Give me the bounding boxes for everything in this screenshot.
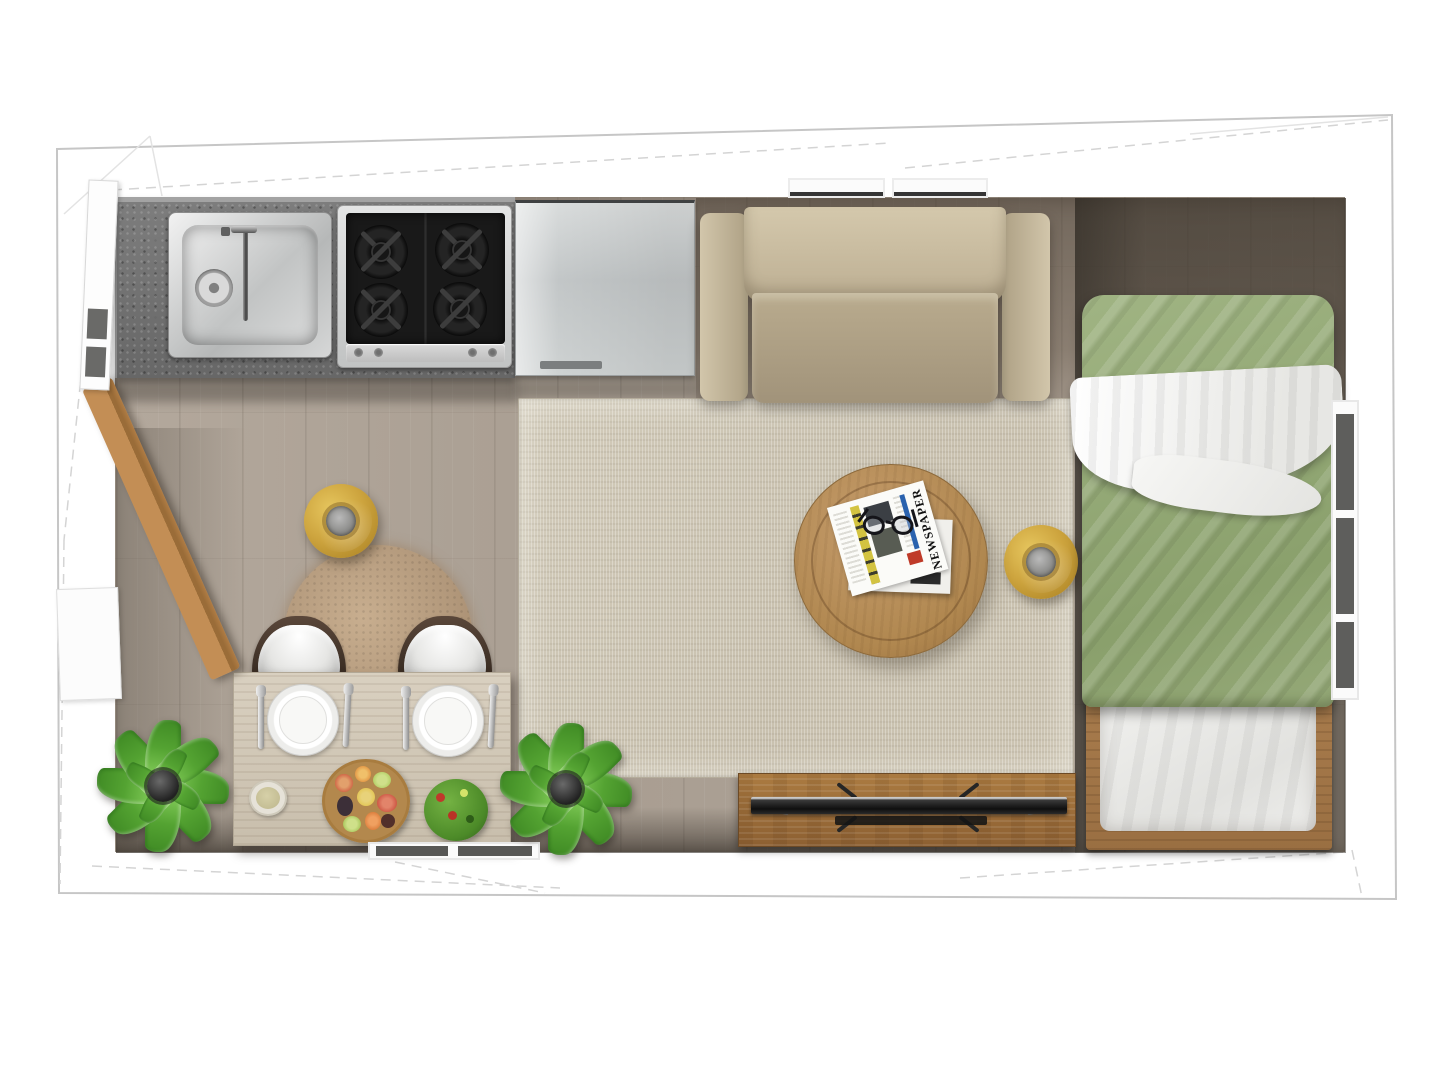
salad-topping [460, 789, 468, 797]
flat-tv [751, 797, 1067, 814]
stove-knob [468, 348, 477, 357]
fridge-vent [540, 361, 602, 369]
salad-topping [436, 793, 445, 802]
right-window [1331, 400, 1359, 700]
newspaper: NEWSPAPER [829, 481, 961, 608]
round-coffee-table: NEWSPAPER [794, 464, 988, 658]
tv-stand-bar [835, 816, 987, 825]
burner-cap [452, 240, 472, 260]
plant-pot [550, 773, 582, 805]
small-dip-bowl [249, 780, 287, 816]
burner-cap [371, 300, 391, 320]
veggie-piece [337, 796, 353, 816]
burner-icon [433, 282, 487, 336]
burner-icon [354, 225, 408, 279]
refrigerator [515, 200, 695, 376]
stove-control-panel [346, 344, 505, 362]
sofa-armrest-left [700, 213, 748, 401]
burner-icon [435, 223, 489, 277]
veggie-piece [365, 812, 381, 830]
veggie-piece [355, 766, 371, 782]
burner-icon [354, 283, 408, 337]
veggie-piece [373, 772, 391, 788]
salad-bowl [424, 779, 488, 841]
window-pane [1336, 622, 1354, 688]
fridge-shadow [516, 378, 698, 398]
kitchen-sink [168, 212, 332, 358]
potted-plant [83, 708, 243, 864]
counter-shadow [116, 378, 518, 402]
salad-topping [448, 811, 457, 820]
stove-knob [374, 348, 383, 357]
veggie-piece [381, 814, 395, 828]
salad-topping [466, 815, 474, 823]
veggie-piece [357, 788, 375, 806]
window-pane [1336, 414, 1354, 510]
vegetable-bowl [322, 759, 410, 843]
door-glass-pane [85, 347, 106, 378]
top-window [892, 178, 988, 198]
sofa [700, 207, 1050, 405]
burner-cap [371, 242, 391, 262]
sofa-backrest [744, 207, 1006, 303]
veggie-piece [343, 816, 361, 832]
door-glass-pane [87, 309, 108, 340]
sink-drain [195, 269, 233, 307]
fork-icon [403, 694, 409, 750]
veggie-piece [335, 774, 353, 792]
dining-table [233, 672, 511, 846]
top-window [788, 178, 885, 198]
tv-console [738, 773, 1076, 847]
faucet-lever [221, 227, 230, 236]
stove-knob [354, 348, 363, 357]
left-lower-door [56, 587, 122, 701]
sofa-seat [752, 293, 998, 403]
gas-cooktop [337, 205, 512, 368]
potted-plant [492, 716, 640, 862]
stove-knob [488, 348, 497, 357]
faucet-spout [231, 226, 257, 233]
gold-side-stool-bedside [1004, 525, 1078, 599]
sofa-armrest-right [1002, 213, 1050, 401]
veggie-piece [377, 794, 397, 812]
faucet [243, 229, 248, 321]
floor-plan: NEWSPAPER [0, 0, 1445, 1084]
window-pane [1336, 518, 1354, 614]
eyeglasses-bridge [886, 520, 893, 524]
burner-cap [450, 299, 470, 319]
fork-icon [258, 693, 264, 749]
plant-pot [147, 770, 179, 802]
gold-side-stool-dining [304, 484, 378, 558]
eyeglasses-lens [861, 514, 886, 537]
cooktop-surface [346, 213, 505, 344]
eyeglasses-lens [890, 514, 915, 537]
single-bed [1080, 293, 1338, 852]
dinner-plate [267, 684, 339, 756]
knife-icon [343, 691, 352, 747]
window-pane [376, 846, 448, 856]
dinner-plate [412, 685, 484, 757]
